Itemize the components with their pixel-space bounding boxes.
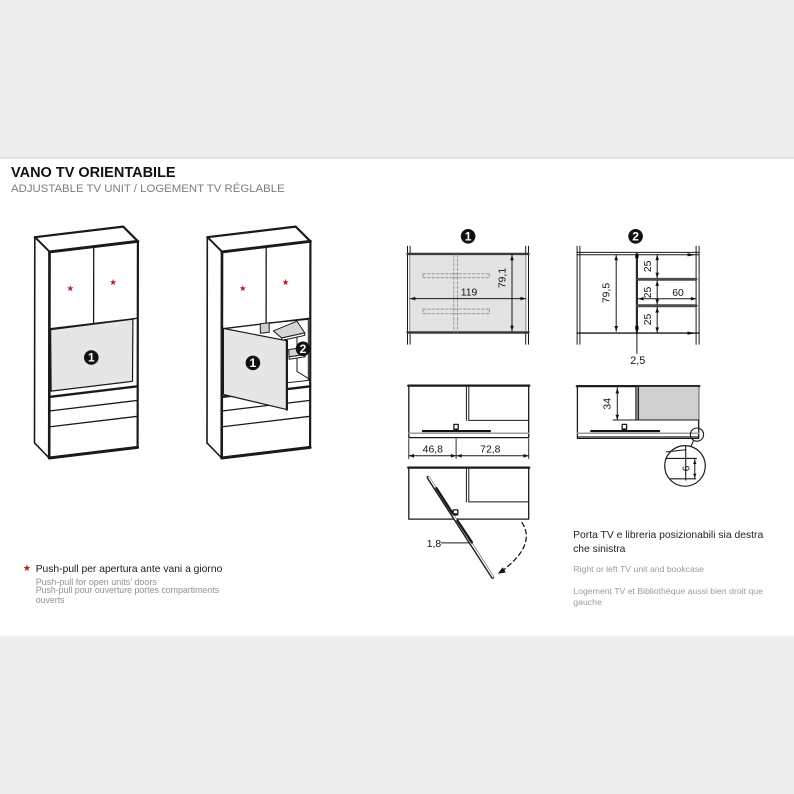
svg-text:25: 25 (643, 314, 654, 326)
svg-text:1: 1 (88, 351, 95, 365)
svg-text:25: 25 (643, 287, 654, 299)
svg-text:1: 1 (465, 230, 472, 244)
svg-text:2: 2 (300, 342, 307, 356)
svg-text:60: 60 (672, 288, 684, 299)
svg-text:1: 1 (250, 356, 257, 370)
svg-text:72,8: 72,8 (480, 444, 500, 455)
svg-text:79,1: 79,1 (498, 268, 509, 288)
svg-text:2,5: 2,5 (630, 355, 645, 367)
svg-text:1,8: 1,8 (427, 539, 442, 550)
svg-text:119: 119 (461, 288, 478, 299)
svg-text:6: 6 (682, 465, 693, 471)
svg-text:79,5: 79,5 (602, 283, 613, 303)
svg-text:25: 25 (643, 260, 654, 272)
svg-text:2: 2 (632, 230, 639, 244)
svg-text:46,8: 46,8 (423, 444, 443, 455)
svg-text:34: 34 (603, 398, 614, 410)
